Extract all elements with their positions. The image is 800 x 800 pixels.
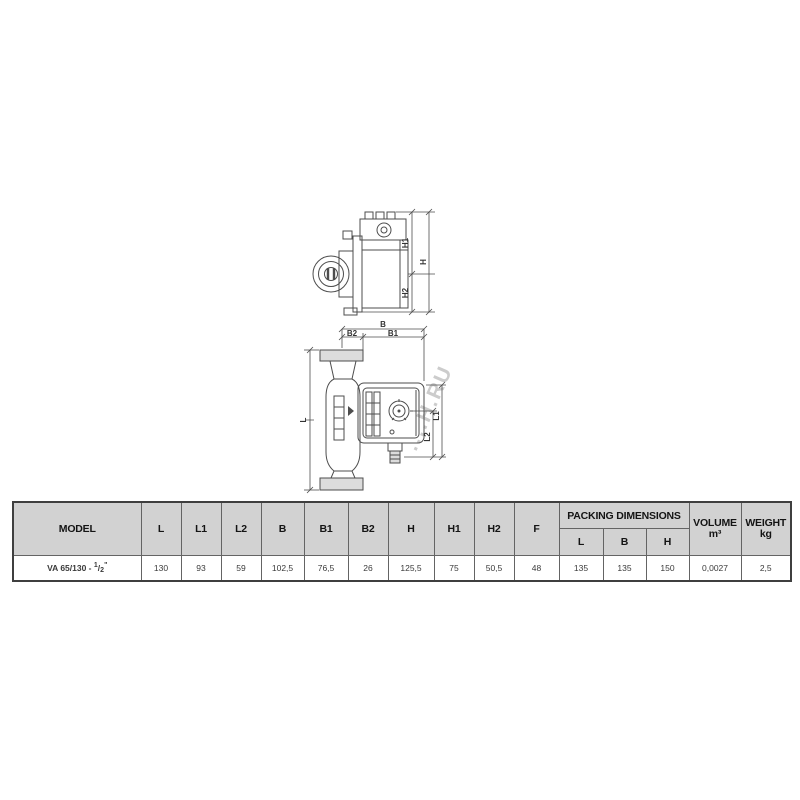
gland-thread: [390, 451, 400, 463]
value-b1: 76,5: [304, 556, 348, 582]
header-volume: VOLUME m³: [689, 502, 741, 556]
cable-gland: [365, 212, 373, 219]
value-b2: 26: [348, 556, 388, 582]
value-packing-h: 150: [646, 556, 689, 582]
header-h: H: [388, 502, 434, 556]
header-h2: H2: [474, 502, 514, 556]
top-flange: [320, 350, 363, 361]
value-l: 130: [141, 556, 181, 582]
pump-housing: [339, 251, 353, 297]
dim-label-b: B: [380, 320, 386, 329]
value-weight: 2,5: [741, 556, 791, 582]
header-packing-dimensions: PACKING DIMENSIONS: [559, 502, 689, 529]
cable-gland: [387, 212, 395, 219]
value-l2: 59: [221, 556, 261, 582]
dim-label-l: L: [299, 417, 308, 422]
selector-knob-center: [381, 227, 387, 233]
model-name: VA 65/130 - 1/2": [13, 556, 141, 582]
header-h1: H1: [434, 502, 474, 556]
bottom-flange: [320, 478, 363, 490]
dim-label-h1: H1: [401, 237, 410, 248]
value-h1: 75: [434, 556, 474, 582]
dim-label-h2: H2: [401, 287, 410, 298]
mounting-plate: [353, 236, 362, 312]
header-weight: WEIGHT kg: [741, 502, 791, 556]
header-model: MODEL: [13, 502, 141, 556]
header-l1: L1: [181, 502, 221, 556]
header-l: L: [141, 502, 181, 556]
value-packing-l: 135: [559, 556, 603, 582]
header-l2: L2: [221, 502, 261, 556]
dim-label-b1: B1: [388, 329, 399, 338]
selector-knob: [377, 223, 391, 237]
dimensions-table: MODEL L L1 L2 B B1 B2 H H1 H2 F PACKING …: [12, 501, 792, 582]
value-l1: 93: [181, 556, 221, 582]
header-b2: B2: [348, 502, 388, 556]
pump-body: [326, 379, 360, 471]
dim-label-b2: B2: [347, 329, 358, 338]
weight-unit: kg: [742, 529, 791, 540]
value-h: 125,5: [388, 556, 434, 582]
header-f: F: [514, 502, 559, 556]
screw: [390, 430, 394, 434]
value-volume: 0,0027: [689, 556, 741, 582]
dim-label-h: H: [419, 259, 428, 265]
volume-unit: m³: [690, 529, 741, 540]
header-packing-b: B: [603, 529, 646, 556]
header-packing-l: L: [559, 529, 603, 556]
table-row: VA 65/130 - 1/2" 130 93 59 102,5 76,5 26…: [13, 556, 791, 582]
value-h2: 50,5: [474, 556, 514, 582]
value-f: 48: [514, 556, 559, 582]
header-packing-h: H: [646, 529, 689, 556]
value-b: 102,5: [261, 556, 304, 582]
dim-label-l1: L1: [432, 411, 441, 421]
side-view-drawing: [313, 212, 408, 315]
flow-arrow: [348, 406, 354, 416]
front-view-drawing: [320, 350, 424, 490]
cable-gland: [376, 212, 384, 219]
dimension-drawings: ....Н.RU: [0, 0, 800, 800]
value-packing-b: 135: [603, 556, 646, 582]
dim-label-l2: L2: [423, 432, 432, 442]
header-b: B: [261, 502, 304, 556]
vent-plug: [343, 231, 352, 239]
header-b1: B1: [304, 502, 348, 556]
